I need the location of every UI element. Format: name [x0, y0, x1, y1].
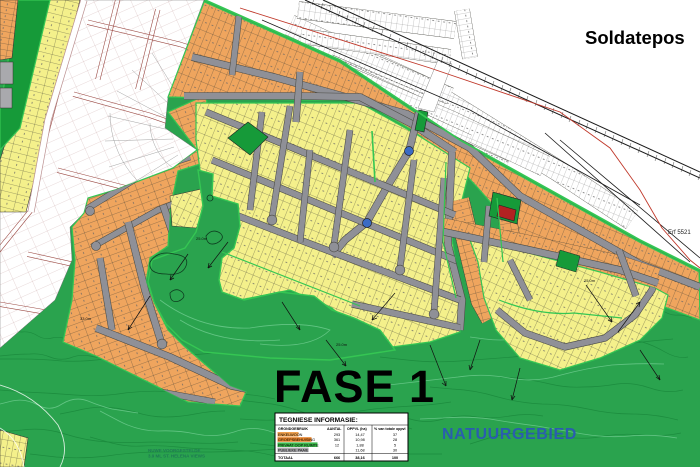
svg-text:AANTAL: AANTAL: [327, 427, 342, 431]
svg-text:30: 30: [393, 449, 397, 453]
svg-text:TOTAAL: TOTAAL: [278, 456, 294, 460]
svg-text:361: 361: [334, 438, 340, 442]
svg-text:666: 666: [334, 456, 340, 460]
svg-text:ENKELWOON: ENKELWOON: [278, 433, 303, 437]
svg-text:10,98: 10,98: [355, 438, 365, 442]
svg-text:Soldatepos: Soldatepos: [585, 27, 685, 48]
svg-text:25.0m: 25.0m: [584, 278, 596, 283]
svg-text:11,68: 11,68: [355, 449, 364, 453]
svg-text:25.0m: 25.0m: [336, 342, 348, 347]
svg-text:25.0m: 25.0m: [196, 236, 208, 241]
svg-text:5: 5: [394, 443, 396, 447]
svg-text:28: 28: [393, 438, 397, 442]
svg-text:37: 37: [393, 433, 397, 437]
svg-text:TEGNIESE INFORMASIE:: TEGNIESE INFORMASIE:: [279, 417, 358, 424]
svg-text:100: 100: [392, 456, 398, 460]
svg-text:Erf 5521: Erf 5521: [668, 230, 691, 236]
svg-text:GROEPSBEHUISING: GROEPSBEHUISING: [278, 438, 315, 442]
svg-text:33.0m: 33.0m: [80, 316, 92, 321]
svg-text:NATUURGEBIED: NATUURGEBIED: [442, 426, 577, 443]
svg-text:1,88: 1,88: [356, 443, 363, 447]
svg-text:293: 293: [334, 433, 340, 437]
svg-text:14,47: 14,47: [355, 433, 365, 437]
svg-text:% van totale oppvl: % van totale oppvl: [374, 427, 406, 431]
svg-text:NUWE VOORGESTELDE3.9 ML ST. HE: NUWE VOORGESTELDE3.9 ML ST. HELENA VIEWS: [148, 448, 205, 459]
svg-text:OPPVL (ha): OPPVL (ha): [347, 427, 368, 431]
svg-text:38,16: 38,16: [355, 456, 365, 460]
svg-text:PRIVAAT OOP RUIMTE: PRIVAAT OOP RUIMTE: [278, 443, 319, 447]
svg-text:12: 12: [335, 443, 339, 447]
svg-text:GRONDGEBRUIK: GRONDGEBRUIK: [278, 427, 308, 431]
svg-text:FASE 1: FASE 1: [274, 361, 435, 412]
svg-text:PUBLIEKE PAAIE: PUBLIEKE PAAIE: [278, 449, 309, 453]
